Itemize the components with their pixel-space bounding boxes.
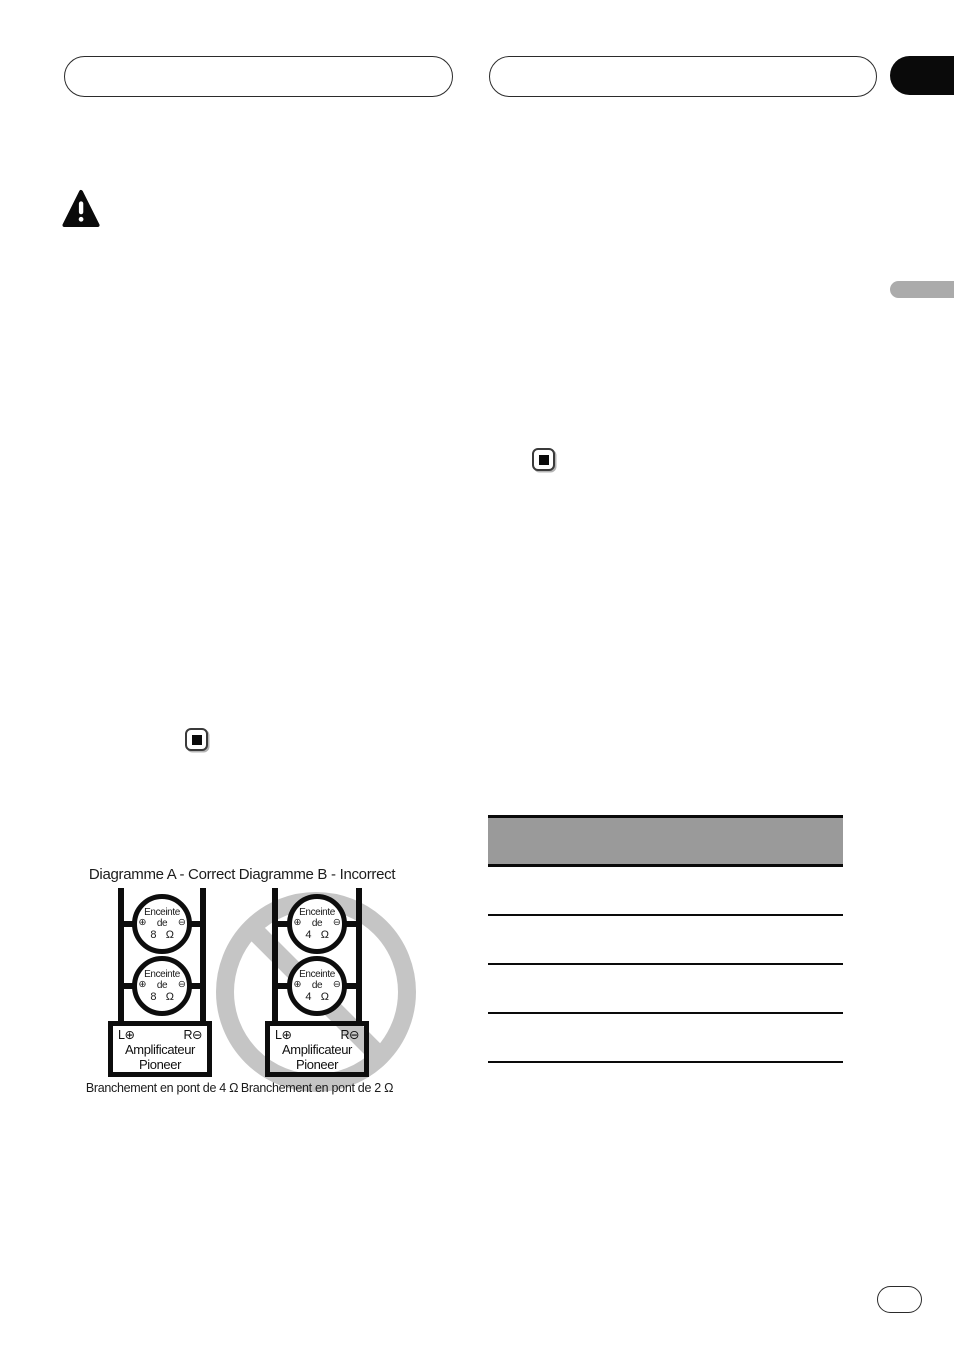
speaker-name: Enceinte [144, 969, 180, 980]
speaker-name: Enceinte [144, 907, 180, 918]
page-number-pill [877, 1286, 922, 1313]
amp-right-terminal: R⊖ [183, 1027, 202, 1042]
diagram-b-speaker-1: Enceinte ⊕ de ⊖ 4 Ω [287, 894, 347, 954]
warning-triangle-icon [62, 188, 100, 230]
amp-name-line2: Pioneer [270, 1057, 364, 1072]
header-tab-right [489, 56, 877, 97]
diagram-a-amplifier: L⊕ R⊖ Amplificateur Pioneer [108, 1021, 212, 1077]
amp-name-line1: Amplificateur [113, 1042, 207, 1057]
diagram-b-amplifier: L⊕ R⊖ Amplificateur Pioneer [265, 1021, 369, 1077]
minus-terminal: ⊖ [178, 980, 186, 991]
plus-terminal: ⊕ [139, 980, 147, 991]
table-row [488, 1014, 843, 1063]
plus-terminal: ⊕ [294, 918, 302, 929]
filled-square-glyph [192, 735, 202, 745]
plus-terminal: ⊕ [139, 918, 147, 929]
speaker-impedance: 4 Ω [305, 929, 328, 941]
amp-left-terminal: L⊕ [275, 1027, 291, 1042]
diagram-b-right-wire [356, 888, 362, 1023]
section-end-icon [532, 448, 555, 471]
table-row [488, 965, 843, 1014]
corner-tab [890, 56, 954, 95]
speaker-name: Enceinte [299, 969, 335, 980]
manual-page: Diagramme A - Correct Enceinte ⊕ de ⊖ 8 … [0, 0, 954, 1351]
diagram-a-left-wire [118, 888, 124, 1023]
diagram-a-right-wire [200, 888, 206, 1023]
speaker-impedance: 4 Ω [305, 991, 328, 1003]
filled-square-glyph [539, 455, 549, 465]
plus-terminal: ⊕ [294, 980, 302, 991]
section-end-icon [185, 728, 208, 751]
amp-left-terminal: L⊕ [118, 1027, 134, 1042]
notes-table-header [488, 818, 843, 867]
table-row [488, 916, 843, 965]
amp-name-line2: Pioneer [113, 1057, 207, 1072]
speaker-de: de [312, 918, 322, 929]
minus-terminal: ⊖ [333, 980, 341, 991]
speaker-impedance: 8 Ω [150, 991, 173, 1003]
diagram-b-left-wire [272, 888, 278, 1023]
amp-right-terminal: R⊖ [340, 1027, 359, 1042]
diagram-b-caption: Branchement en pont de 2 Ω [207, 1081, 427, 1095]
header-tab-left [64, 56, 453, 97]
minus-terminal: ⊖ [333, 918, 341, 929]
speaker-impedance: 8 Ω [150, 929, 173, 941]
diagram-a-speaker-2: Enceinte ⊕ de ⊖ 8 Ω [132, 956, 192, 1016]
speaker-de: de [312, 980, 322, 991]
section-side-badge [890, 281, 954, 298]
speaker-de: de [157, 918, 167, 929]
speaker-name: Enceinte [299, 907, 335, 918]
diagram-b-title: Diagramme B - Incorrect [217, 866, 417, 883]
diagram-b-speaker-2: Enceinte ⊕ de ⊖ 4 Ω [287, 956, 347, 1016]
notes-table [488, 815, 843, 1063]
minus-terminal: ⊖ [178, 918, 186, 929]
table-row [488, 867, 843, 916]
amp-name-line1: Amplificateur [270, 1042, 364, 1057]
diagram-a-speaker-1: Enceinte ⊕ de ⊖ 8 Ω [132, 894, 192, 954]
speaker-de: de [157, 980, 167, 991]
